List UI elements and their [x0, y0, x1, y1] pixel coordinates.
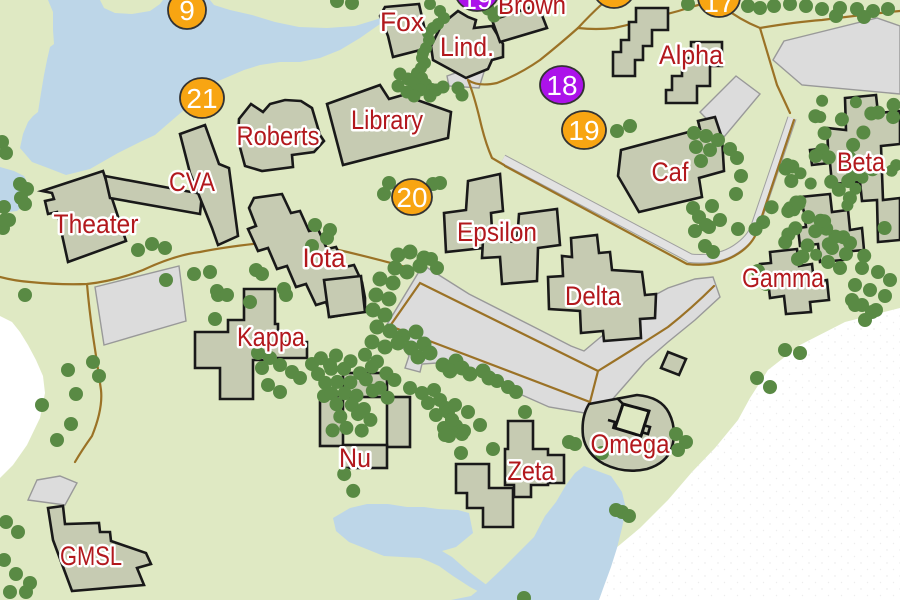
svg-text:Zeta: Zeta [508, 456, 556, 486]
svg-text:Lind.: Lind. [440, 32, 494, 62]
svg-text:Library: Library [351, 105, 423, 135]
svg-text:CVA: CVA [169, 167, 215, 197]
svg-text:Nu: Nu [339, 443, 371, 473]
svg-text:Epsilon: Epsilon [457, 217, 537, 247]
svg-text:Theater: Theater [54, 209, 139, 239]
svg-text:Gamma: Gamma [742, 263, 825, 293]
svg-text:18: 18 [546, 70, 577, 101]
svg-text:Iota: Iota [303, 243, 347, 273]
svg-text:Fox: Fox [380, 7, 424, 37]
svg-text:20: 20 [396, 182, 427, 213]
svg-text:Alpha: Alpha [659, 40, 724, 70]
svg-text:Omega: Omega [591, 429, 671, 459]
svg-text:Delta: Delta [565, 281, 622, 311]
svg-text:19: 19 [568, 115, 599, 146]
svg-text:17: 17 [703, 0, 734, 18]
svg-text:Brown: Brown [498, 0, 566, 20]
svg-text:Kappa: Kappa [237, 322, 306, 352]
svg-text:21: 21 [186, 83, 217, 114]
svg-text:Roberts: Roberts [237, 121, 320, 151]
svg-text:19: 19 [461, 0, 492, 15]
svg-text:Caf: Caf [652, 157, 689, 187]
svg-text:GMSL: GMSL [60, 541, 122, 571]
svg-text:9: 9 [179, 0, 195, 26]
svg-text:Beta: Beta [837, 147, 886, 177]
